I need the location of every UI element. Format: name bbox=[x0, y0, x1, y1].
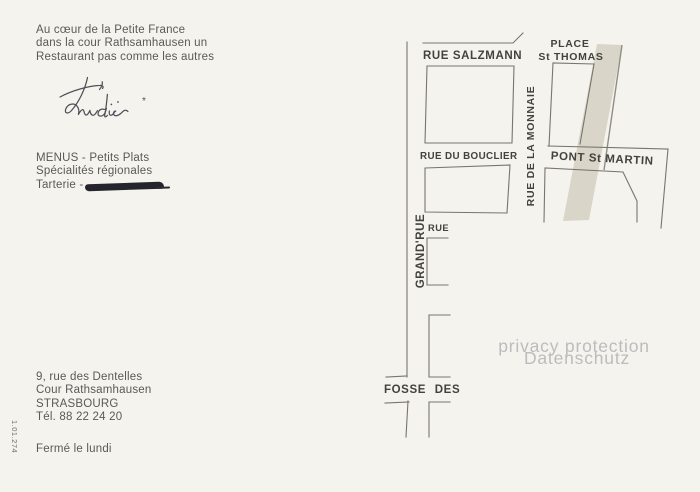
privacy-watermark: privacy protection Datenschutz bbox=[498, 336, 650, 368]
label-rue-du-bouclier: RUE DU BOUCLIER bbox=[420, 151, 517, 162]
label-pont-st-martin: PONT St MARTIN bbox=[550, 150, 653, 167]
map-east-edge-line bbox=[661, 149, 668, 228]
fosse-des-north-line bbox=[386, 376, 407, 377]
label-rue-de-la-monnaie: RUE DE LA MONNAIE bbox=[525, 86, 537, 207]
block-bouclier-south bbox=[425, 165, 510, 213]
rue-salzmann-north-line bbox=[423, 33, 523, 43]
watermark-line-2: Datenschutz bbox=[524, 348, 630, 368]
grand-rue-west-line-lower bbox=[406, 401, 408, 437]
label-grand-rue: GRAND'RUE bbox=[415, 214, 427, 289]
fosse-des-south-line bbox=[385, 402, 409, 403]
label-rue: RUE bbox=[428, 223, 449, 233]
label-st-thomas: St THOMAS bbox=[538, 51, 603, 63]
block-east-of-grand-rue-3 bbox=[429, 402, 450, 437]
label-place: PLACE bbox=[550, 38, 589, 50]
block-salzmann-bouclier bbox=[425, 66, 514, 143]
postcard-scan: Au cœur de la Petite France dans la cour… bbox=[0, 0, 700, 492]
block-east-of-grand-rue-2 bbox=[429, 315, 450, 377]
label-fosse-des: FOSSE DES bbox=[384, 384, 460, 396]
block-east-of-grand-rue-1 bbox=[427, 238, 448, 285]
label-rue-salzmann: RUE SALZMANN bbox=[423, 50, 522, 62]
location-map: RUE SALZMANN PLACE St THOMAS RUE DU BOUC… bbox=[0, 0, 700, 492]
